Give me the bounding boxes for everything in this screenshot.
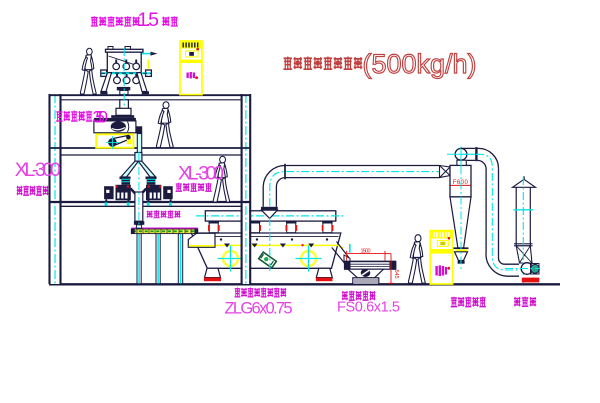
svg-text:ZLG6x0.75: ZLG6x0.75 (225, 300, 293, 318)
svg-text:1500: 1500 (361, 249, 371, 255)
svg-text:545: 545 (393, 270, 399, 279)
svg-text:FS0.6x1.5: FS0.6x1.5 (337, 300, 400, 316)
svg-text:1.5: 1.5 (138, 9, 160, 31)
svg-text:XL-300: XL-300 (15, 159, 61, 181)
svg-text:(500kg/h): (500kg/h) (363, 49, 477, 79)
svg-text:350: 350 (93, 108, 109, 127)
svg-text:XL-300: XL-300 (178, 163, 224, 185)
